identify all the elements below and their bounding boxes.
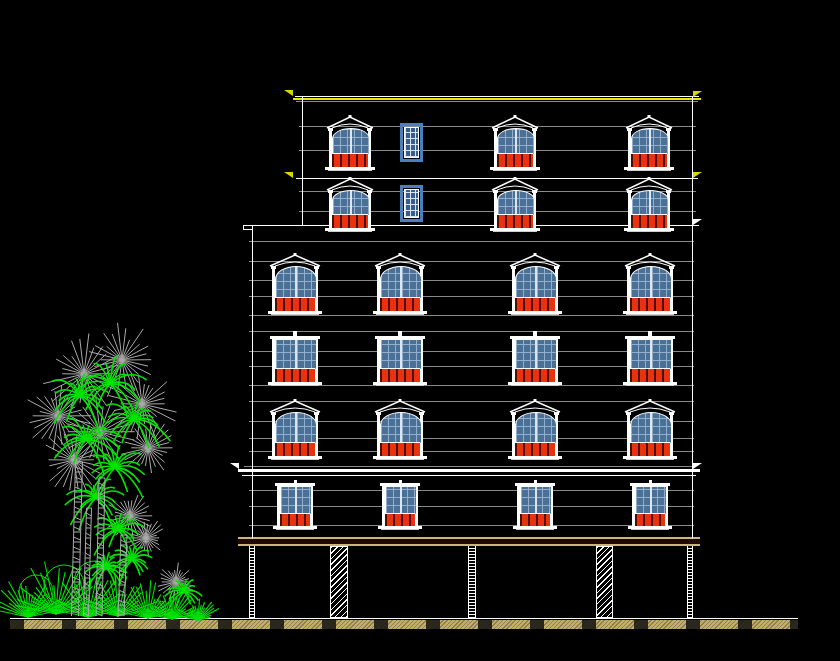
window-sill-step [376, 459, 424, 460]
window-glazing [630, 266, 672, 299]
pilaster-capital [532, 128, 537, 131]
pilaster-capital [376, 412, 381, 415]
entablature-cap [648, 331, 652, 336]
level-marker [230, 463, 239, 469]
window-arched [268, 399, 322, 461]
window-glazing [515, 412, 557, 444]
window-sill-step [511, 459, 559, 460]
window-pediment [508, 399, 562, 413]
window-pediment [508, 253, 562, 267]
window-glazing [275, 412, 317, 444]
window-apron-panel [515, 368, 555, 383]
window-mullion [400, 487, 402, 514]
window-flat [513, 480, 557, 531]
window-sill-step [328, 170, 372, 171]
window-sill-step [276, 529, 314, 530]
window-glazing [630, 339, 672, 370]
entablature-cap [399, 480, 402, 483]
pilaster-capital [271, 266, 276, 269]
window-apron-panel [380, 442, 420, 457]
window-flat [273, 480, 317, 531]
window-pediment [623, 253, 677, 267]
window-apron-panel [515, 297, 555, 312]
window-apron-panel [380, 368, 420, 383]
piloti-column-narrow [249, 546, 255, 618]
pilaster-capital [314, 412, 319, 415]
window-mullion [649, 129, 651, 154]
pilaster-capital [367, 190, 372, 193]
window-mullion [400, 413, 402, 443]
window-mullion [515, 129, 517, 154]
window-apron-panel [497, 153, 533, 168]
window-apron-panel [332, 153, 368, 168]
pilaster-capital [367, 128, 372, 131]
small-window [400, 185, 423, 222]
window-pediment [624, 115, 674, 129]
window-sill-step [516, 529, 554, 530]
window-mullion [649, 191, 651, 215]
pilaster-capital [554, 412, 559, 415]
window-sill-step [271, 459, 319, 460]
window-sill-step [511, 385, 559, 386]
window-glazing [630, 412, 672, 444]
window-pediment [268, 253, 322, 267]
window-apron-panel [275, 297, 315, 312]
small-window-glazing [404, 189, 419, 218]
window-mullion [295, 267, 297, 298]
window-arched [624, 115, 674, 172]
level-marker [693, 91, 702, 97]
window-sill-step [631, 529, 669, 530]
pilaster-capital [419, 412, 424, 415]
pilaster-capital [626, 412, 631, 415]
window-apron-panel [380, 297, 420, 312]
level-marker [693, 172, 702, 178]
window-sill-step [271, 314, 319, 315]
window-glazing [515, 339, 557, 370]
window-glazing [380, 412, 422, 444]
window-arched [490, 115, 540, 172]
window-glazing [275, 266, 317, 299]
level-marker [284, 172, 293, 178]
pilaster-capital [511, 266, 516, 269]
window-sill-step [493, 170, 537, 171]
window-glazing [497, 128, 535, 155]
entablature-cap [649, 480, 652, 483]
window-flat [268, 331, 322, 387]
piloti-column-narrow [468, 546, 476, 618]
window-sill-step [627, 231, 671, 232]
window-pediment [325, 177, 375, 191]
window-apron-panel [635, 513, 665, 527]
pilaster-capital [666, 128, 671, 131]
window-apron-panel [520, 513, 550, 527]
pilaster-capital [669, 412, 674, 415]
window-sill-step [381, 529, 419, 530]
window-glazing [497, 190, 535, 216]
window-mullion [650, 413, 652, 443]
window-sill-step [626, 314, 674, 315]
window-glazing [631, 190, 669, 216]
window-pediment [490, 177, 540, 191]
window-mullion [515, 191, 517, 215]
small-window [400, 123, 423, 162]
window-mullion [295, 340, 297, 369]
window-sill-step [493, 231, 537, 232]
window-pediment [373, 253, 427, 267]
window-apron-panel [275, 442, 315, 457]
window-apron-panel [630, 442, 670, 457]
pilaster-capital [328, 190, 333, 193]
piloti-column-wide [596, 546, 613, 618]
window-mullion [400, 267, 402, 298]
pilaster-capital [532, 190, 537, 193]
window-arched [508, 253, 562, 316]
level-marker [693, 219, 702, 225]
window-mullion [350, 129, 352, 154]
pilaster-capital [669, 266, 674, 269]
window-glazing [635, 486, 667, 515]
window-arched [623, 253, 677, 316]
pilaster-capital [511, 412, 516, 415]
window-glazing [515, 266, 557, 299]
pilaster-capital [376, 266, 381, 269]
pilaster-capital [666, 190, 671, 193]
window-pediment [373, 399, 427, 413]
window-apron-panel [332, 214, 368, 229]
pilaster-capital [626, 266, 631, 269]
window-mullion [535, 267, 537, 298]
window-apron-panel [630, 368, 670, 383]
window-arched [268, 253, 322, 316]
landscape-trees [0, 330, 230, 630]
window-apron-panel [385, 513, 415, 527]
pilaster-capital [493, 190, 498, 193]
window-arched [490, 177, 540, 233]
window-sill-step [626, 459, 674, 460]
window-flat [623, 331, 677, 387]
window-glazing [385, 486, 417, 515]
window-flat [373, 331, 427, 387]
level-marker [693, 463, 702, 469]
window-sill-step [376, 385, 424, 386]
window-flat [508, 331, 562, 387]
window-apron-panel [280, 513, 310, 527]
window-sill-step [627, 170, 671, 171]
window-pediment [325, 115, 375, 129]
window-mullion [400, 340, 402, 369]
pilaster-capital [314, 266, 319, 269]
level-marker [284, 90, 293, 96]
window-pediment [624, 177, 674, 191]
pilaster-capital [554, 266, 559, 269]
pilaster-capital [627, 128, 632, 131]
window-mullion [535, 340, 537, 369]
window-glazing [380, 339, 422, 370]
window-glazing [332, 190, 370, 216]
entablature-cap [534, 480, 537, 483]
window-glazing [332, 128, 370, 155]
window-sill-step [271, 385, 319, 386]
window-mullion [535, 413, 537, 443]
window-apron-panel [497, 214, 533, 229]
entablature-cap [294, 480, 297, 483]
window-mullion [650, 340, 652, 369]
window-apron-panel [631, 214, 667, 229]
entablature-cap [533, 331, 537, 336]
window-mullion [650, 487, 652, 514]
pilaster-capital [271, 412, 276, 415]
pilaster-capital [328, 128, 333, 131]
window-pediment [268, 399, 322, 413]
window-arched [508, 399, 562, 461]
window-glazing [520, 486, 552, 515]
window-mullion [350, 191, 352, 215]
window-pediment [490, 115, 540, 129]
window-glazing [280, 486, 312, 515]
window-arched [623, 399, 677, 461]
small-window-glazing [404, 127, 419, 158]
window-sill-step [626, 385, 674, 386]
window-mullion [295, 413, 297, 443]
pilaster-capital [419, 266, 424, 269]
pilaster-capital [493, 128, 498, 131]
window-glazing [275, 339, 317, 370]
window-arched [373, 253, 427, 316]
window-arched [325, 115, 375, 172]
piloti-column-narrow [687, 546, 693, 618]
window-glazing [631, 128, 669, 155]
window-apron-panel [275, 368, 315, 383]
window-glazing [380, 266, 422, 299]
cad-canvas[interactable] [0, 0, 840, 661]
window-apron-panel [630, 297, 670, 312]
window-mullion [650, 267, 652, 298]
window-flat [378, 480, 422, 531]
window-flat [628, 480, 672, 531]
window-apron-panel [631, 153, 667, 168]
pilaster-capital [627, 190, 632, 193]
entablature-cap [293, 331, 297, 336]
window-mullion [295, 487, 297, 514]
window-arched [373, 399, 427, 461]
window-apron-panel [515, 442, 555, 457]
entablature-cap [398, 331, 402, 336]
window-sill-step [328, 231, 372, 232]
window-pediment [623, 399, 677, 413]
window-sill-step [511, 314, 559, 315]
piloti-column-wide [330, 546, 348, 618]
window-mullion [535, 487, 537, 514]
window-arched [325, 177, 375, 233]
window-arched [624, 177, 674, 233]
window-sill-step [376, 314, 424, 315]
